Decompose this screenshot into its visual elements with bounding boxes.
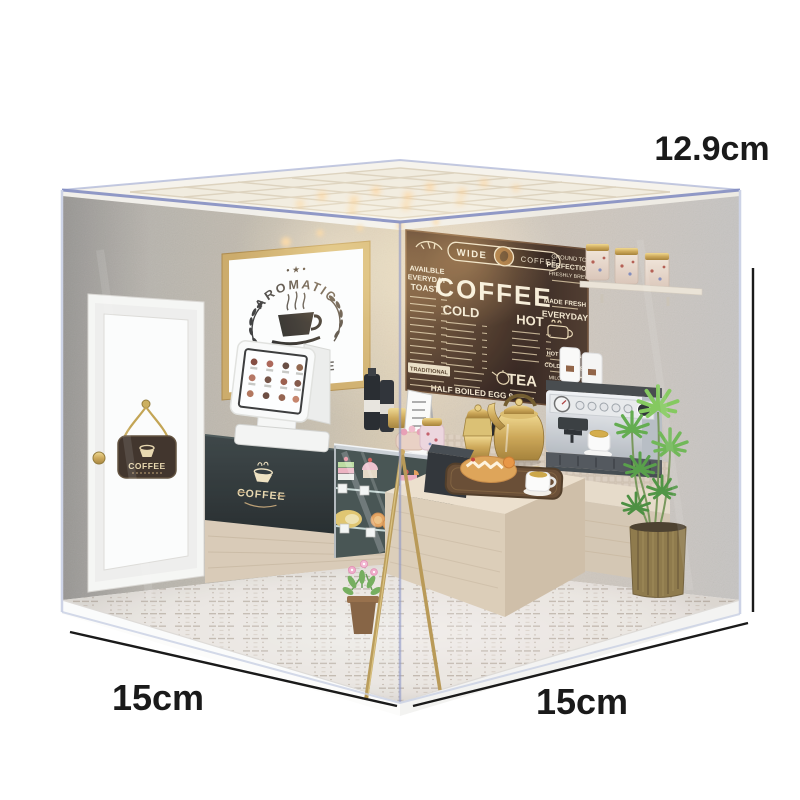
height-dimension-label: 12.9cm <box>654 130 769 168</box>
acrylic-face-right <box>400 192 740 702</box>
width-dimension-label: 15cm <box>536 681 628 722</box>
product-photo-miniature-coffee-shop: WIDE COFFEE GROUND TO PERFECTION FRESHLY… <box>0 0 800 800</box>
acrylic-cover <box>62 160 740 703</box>
scene: WIDE COFFEE GROUND TO PERFECTION FRESHLY… <box>0 0 800 800</box>
depth-dimension-label: 15cm <box>112 677 204 718</box>
